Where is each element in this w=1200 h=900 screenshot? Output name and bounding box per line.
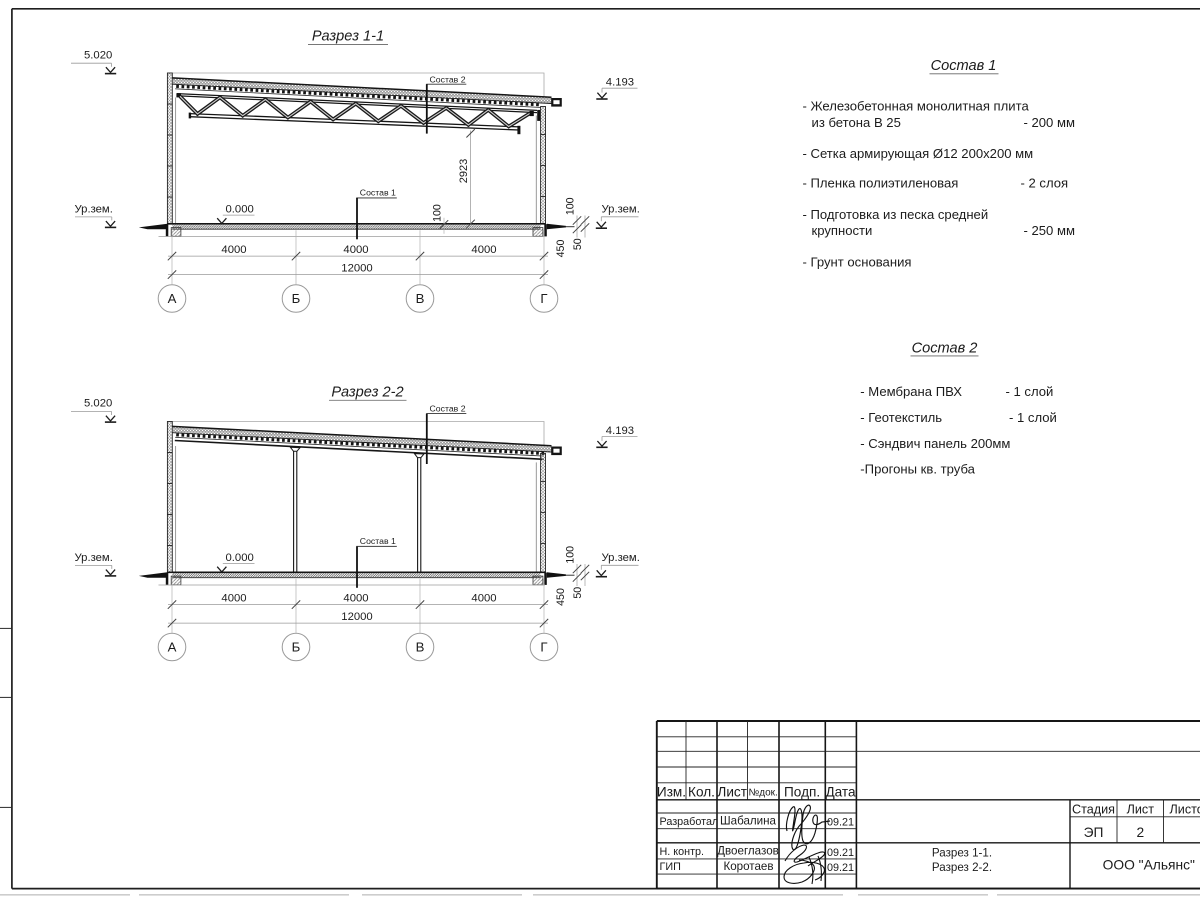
svg-text:В: В [416,640,425,655]
svg-text:Б: Б [292,291,301,306]
svg-text:В: В [416,291,425,306]
svg-text:Разрез 1-1.: Разрез 1-1. [932,847,992,860]
svg-text:100: 100 [432,204,444,222]
svg-text:4000: 4000 [221,244,246,256]
svg-text:Изм.: Изм. [657,784,686,799]
svg-text:из бетона В 25: из бетона В 25 [812,115,901,130]
svg-text:4000: 4000 [471,592,496,604]
svg-text:450: 450 [555,240,567,258]
svg-text:09.21: 09.21 [827,862,854,874]
svg-text:Ур.зем.: Ур.зем. [602,552,640,564]
svg-text:100: 100 [565,197,577,215]
svg-text:Листов: Листов [1170,803,1200,817]
svg-text:Разработал: Разработал [660,816,719,828]
svg-text:- 200 мм: - 200 мм [1024,115,1076,130]
svg-text:Коротаев: Коротаев [723,860,773,873]
svg-text:Состав 2: Состав 2 [912,340,978,356]
svg-text:Лист: Лист [717,784,747,799]
svg-text:Стадия: Стадия [1072,803,1115,817]
svg-text:Ур.зем.: Ур.зем. [602,203,640,215]
svg-text:ООО "Альянс": ООО "Альянс" [1103,857,1195,872]
svg-text:- 250 мм: - 250 мм [1024,223,1076,238]
svg-text:Двоеглазов: Двоеглазов [717,845,779,858]
svg-text:- Геотекстиль: - Геотекстиль [860,410,942,425]
svg-text:Шабалина: Шабалина [720,815,777,828]
svg-text:12000: 12000 [341,262,372,274]
svg-text:Б: Б [292,640,301,655]
svg-text:12000: 12000 [341,611,372,623]
svg-text:- Железобетонная монолитная п: - Железобетонная монолитная плита [803,99,1030,114]
svg-text:- 1 слой: - 1 слой [1006,384,1054,399]
svg-text:- Сетка армирующая Ø12 200х200: - Сетка армирующая Ø12 200х200 мм [803,146,1034,161]
svg-text:ГИП: ГИП [660,861,681,873]
svg-text:Разрез 2-2: Разрез 2-2 [331,385,403,401]
svg-text:Дата: Дата [825,784,856,799]
svg-text:450: 450 [555,588,567,606]
svg-text:-Прогоны кв. труба: -Прогоны кв. труба [860,462,975,477]
svg-text:4000: 4000 [343,592,368,604]
svg-text:ЭП: ЭП [1084,825,1104,840]
svg-text:Подп.: Подп. [784,784,820,799]
svg-text:крупности: крупности [812,223,873,238]
svg-text:Г: Г [540,291,547,306]
svg-text:- Грунт основания: - Грунт основания [803,254,912,269]
svg-text:Состав 1: Состав 1 [360,536,396,546]
svg-text:Ур.зем.: Ур.зем. [75,552,113,564]
svg-text:Состав 2: Состав 2 [430,74,466,84]
svg-text:4000: 4000 [343,244,368,256]
svg-text:2923: 2923 [458,159,470,183]
svg-text:09.21: 09.21 [827,847,854,859]
svg-text:50: 50 [572,238,584,250]
svg-text:Н. контр.: Н. контр. [660,846,705,858]
svg-text:Ур.зем.: Ур.зем. [75,204,113,216]
svg-text:Состав 1: Состав 1 [931,58,997,74]
svg-text:- Пленка полиэтиленовая: - Пленка полиэтиленовая [803,176,959,191]
svg-text:50: 50 [572,587,584,599]
svg-text:09.21: 09.21 [827,817,854,829]
svg-text:- 1 слой: - 1 слой [1009,410,1057,425]
svg-text:100: 100 [565,546,577,564]
svg-text:5.020: 5.020 [84,397,112,409]
svg-text:4.193: 4.193 [606,77,634,89]
svg-text:Кол.: Кол. [688,784,715,799]
svg-text:Состав 2: Состав 2 [430,404,466,414]
svg-text:0.000: 0.000 [226,552,254,564]
svg-text:4.193: 4.193 [606,425,634,437]
svg-text:Разрез 1-1: Разрез 1-1 [312,29,384,45]
svg-text:0.000: 0.000 [226,204,254,216]
svg-text:Г: Г [540,640,547,655]
svg-text:Состав 1: Состав 1 [360,187,396,197]
svg-text:- Мембрана ПВХ: - Мембрана ПВХ [860,384,962,399]
svg-text:- Подготовка из песка средней: - Подготовка из песка средней [803,207,989,222]
svg-text:- 2 слоя: - 2 слоя [1021,176,1069,191]
svg-text:- Сэндвич панель 200мм: - Сэндвич панель 200мм [860,436,1010,451]
svg-text:4000: 4000 [471,244,496,256]
svg-text:4000: 4000 [221,592,246,604]
svg-text:Разрез 2-2.: Разрез 2-2. [932,861,992,874]
svg-text:А: А [168,291,177,306]
svg-text:2: 2 [1136,825,1144,840]
svg-text:№док.: №док. [749,788,778,799]
svg-text:5.020: 5.020 [84,49,112,61]
svg-text:А: А [168,640,177,655]
svg-text:Лист: Лист [1127,803,1155,817]
